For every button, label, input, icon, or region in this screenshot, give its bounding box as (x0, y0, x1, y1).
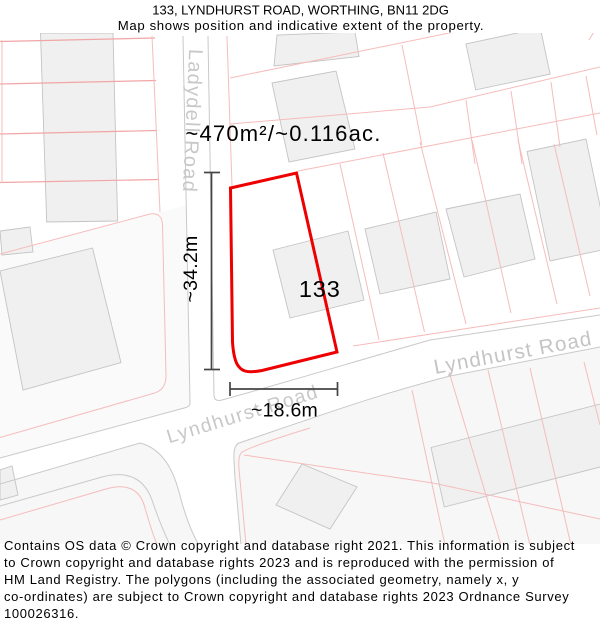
svg-text:co-ordinates) are subject to C: co-ordinates) are subject to Crown copyr… (4, 589, 569, 604)
svg-text:~470m²/~0.116ac.: ~470m²/~0.116ac. (185, 121, 381, 146)
svg-text:~34.2m: ~34.2m (180, 235, 202, 302)
svg-text:Map shows position and indicat: Map shows position and indicative extent… (118, 18, 484, 33)
svg-text:~18.6m: ~18.6m (251, 400, 318, 422)
svg-text:133: 133 (299, 276, 341, 302)
svg-text:HM Land Registry. The polygons: HM Land Registry. The polygons (includin… (4, 572, 519, 587)
svg-text:133, LYNDHURST ROAD, WORTHING,: 133, LYNDHURST ROAD, WORTHING, BN11 2DG (152, 3, 449, 18)
svg-text:to Crown copyright and databas: to Crown copyright and database rights 2… (4, 555, 554, 570)
svg-text:Contains OS data © Crown copyr: Contains OS data © Crown copyright and d… (4, 538, 575, 553)
svg-text:100026316.: 100026316. (4, 606, 79, 621)
